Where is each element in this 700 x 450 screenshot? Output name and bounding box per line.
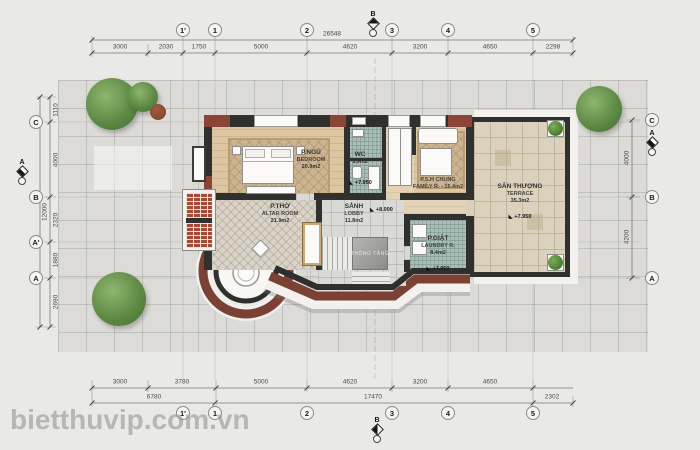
terrace-tile-accent bbox=[495, 150, 511, 166]
dim-label: 3780 bbox=[175, 379, 189, 386]
dim-label: 3000 bbox=[113, 379, 127, 386]
section-arrow-icon bbox=[367, 17, 380, 30]
dim-label: 4000 bbox=[53, 153, 60, 167]
dim-label: 2030 bbox=[159, 44, 173, 51]
planter-brick bbox=[186, 193, 212, 218]
grid-bubble-col: 2 bbox=[300, 23, 314, 37]
section-arrow-icon bbox=[646, 136, 659, 149]
planter-brick bbox=[186, 223, 212, 248]
family-tv-cabinet bbox=[420, 148, 452, 176]
blanket-line bbox=[243, 161, 293, 162]
bedroom-label: P.NGỦ BEDROOM 20.9m2 bbox=[297, 149, 326, 171]
grid-bubble-col: 2 bbox=[300, 406, 314, 420]
terrace-wall-right bbox=[565, 117, 570, 277]
laundry-label: P.GIẶT LAUNDRY R. 8.4m2 +7.950 bbox=[421, 235, 455, 275]
stair-void: THÔNG TẦNG bbox=[352, 237, 388, 270]
shrub bbox=[150, 104, 166, 120]
dim-label: 17470 bbox=[364, 394, 382, 401]
tree bbox=[576, 86, 622, 132]
brick-pier bbox=[448, 115, 472, 127]
grid-bubble-row: A' bbox=[29, 235, 43, 249]
watermark: bietthuvip.com.vn bbox=[10, 404, 250, 436]
dim-label: 3200 bbox=[413, 379, 427, 386]
wardrobe bbox=[388, 128, 412, 186]
dim-label: 2302 bbox=[545, 394, 559, 401]
section-marker-b: B bbox=[368, 417, 386, 443]
dim-label: 3000 bbox=[113, 44, 127, 51]
dim-label: 4200 bbox=[624, 230, 631, 244]
terrace-wall-bottom bbox=[470, 272, 570, 277]
bay-window-seat bbox=[192, 146, 206, 182]
section-marker-b: B bbox=[364, 11, 382, 37]
door-opening bbox=[404, 246, 410, 260]
grid-bubble-row: C bbox=[29, 115, 43, 129]
dim-label: 1110 bbox=[53, 103, 60, 117]
dim-label: 3200 bbox=[413, 44, 427, 51]
dim-label: 1880 bbox=[53, 253, 60, 267]
section-arrow-icon bbox=[371, 423, 384, 436]
wc-label: WC 5.9m2 bbox=[352, 151, 368, 166]
tree bbox=[92, 272, 146, 326]
wc-toilet bbox=[352, 166, 362, 179]
lobby-level-marker: +8.000 bbox=[370, 207, 393, 213]
dim-label: 2320 bbox=[53, 213, 60, 227]
wall-wc-dressing bbox=[382, 125, 386, 193]
door-opening bbox=[386, 193, 400, 200]
dim-label: 2690 bbox=[53, 295, 60, 309]
wc-sink bbox=[352, 129, 364, 137]
dim-label: 4620 bbox=[343, 44, 357, 51]
grid-bubble-row: A bbox=[29, 271, 43, 285]
grid-bubble-col: 3 bbox=[385, 23, 399, 37]
grid-bubble-col: 3 bbox=[385, 406, 399, 420]
dim-label: 4000 bbox=[624, 151, 631, 165]
dim-label: 12000 bbox=[42, 203, 49, 221]
lobby-label: SẢNH LOBBY 11.8m2 bbox=[344, 203, 363, 225]
laundry-level-marker: +7.950 bbox=[427, 266, 450, 272]
dresser bbox=[246, 186, 296, 194]
grid-bubble-col: 5 bbox=[526, 406, 540, 420]
dim-label: 26548 bbox=[323, 31, 341, 38]
terrace-parapet-strip bbox=[474, 110, 570, 117]
terrace-level-marker: +7.950 bbox=[509, 214, 532, 220]
grid-bubble-col: 4 bbox=[441, 23, 455, 37]
wc-shower bbox=[368, 166, 380, 190]
dim-label: 4620 bbox=[343, 379, 357, 386]
dim-label: 1750 bbox=[192, 44, 206, 51]
void-label: THÔNG TẦNG bbox=[351, 251, 389, 257]
altar-label: P.THỜ ALTAR ROOM 21.9m2 bbox=[262, 203, 298, 225]
window bbox=[388, 115, 410, 127]
window bbox=[254, 115, 298, 127]
wc-level-marker: +7.950 bbox=[349, 180, 372, 186]
grid-bubble-row: B bbox=[29, 190, 43, 204]
floor-plan-sheet: THÔNG TẦNG P.NGỦ BEDROOM 20.9m2 WC 5.9m2… bbox=[0, 0, 700, 450]
dim-label: 5000 bbox=[254, 379, 268, 386]
window bbox=[352, 117, 366, 125]
terrace-parapet-strip bbox=[570, 110, 578, 284]
dim-label: 5000 bbox=[254, 44, 268, 51]
window bbox=[420, 115, 446, 127]
brick-pier bbox=[330, 115, 346, 127]
grid-bubble-col: 1' bbox=[176, 23, 190, 37]
family-sofa bbox=[418, 128, 458, 144]
terrace-parapet-strip bbox=[474, 277, 570, 284]
stair-flight bbox=[322, 237, 352, 270]
door-opening bbox=[296, 193, 314, 200]
lower-roof-outline bbox=[94, 146, 172, 190]
section-marker-a: A bbox=[13, 159, 31, 185]
wall-middle bbox=[208, 193, 468, 200]
grid-bubble-col: 5 bbox=[526, 23, 540, 37]
section-marker-a: A bbox=[643, 130, 661, 156]
pillow bbox=[245, 149, 265, 158]
altar-cabinet bbox=[302, 222, 322, 266]
section-arrow-icon bbox=[16, 165, 29, 178]
grid-bubble-col: 4 bbox=[441, 406, 455, 420]
dim-label: 2298 bbox=[546, 44, 560, 51]
dim-label: 4650 bbox=[483, 379, 497, 386]
grid-bubble-row: A bbox=[645, 271, 659, 285]
brick-pier bbox=[204, 115, 230, 127]
wall-dressing-family bbox=[412, 125, 416, 155]
potted-plant bbox=[548, 255, 563, 270]
dim-label: 6780 bbox=[147, 394, 161, 401]
family-label: P.S.H CHUNG FAMILY R. - 15.4m2 bbox=[413, 177, 463, 191]
wall-laundry-top bbox=[404, 214, 468, 220]
grid-bubble-row: C bbox=[645, 113, 659, 127]
nightstand bbox=[232, 146, 241, 155]
dim-label: 4650 bbox=[483, 44, 497, 51]
potted-plant bbox=[548, 121, 563, 136]
pillow bbox=[271, 149, 291, 158]
grid-bubble-col: 1 bbox=[208, 23, 222, 37]
grid-bubble-row: B bbox=[645, 190, 659, 204]
terrace-label: SÂN THƯỢNG TERRACE 35.3m2 +7.950 bbox=[498, 183, 543, 223]
terrace-door-opening bbox=[466, 200, 474, 216]
bed bbox=[242, 146, 294, 184]
corridor-floor bbox=[404, 200, 468, 214]
stair-flight bbox=[352, 272, 390, 287]
